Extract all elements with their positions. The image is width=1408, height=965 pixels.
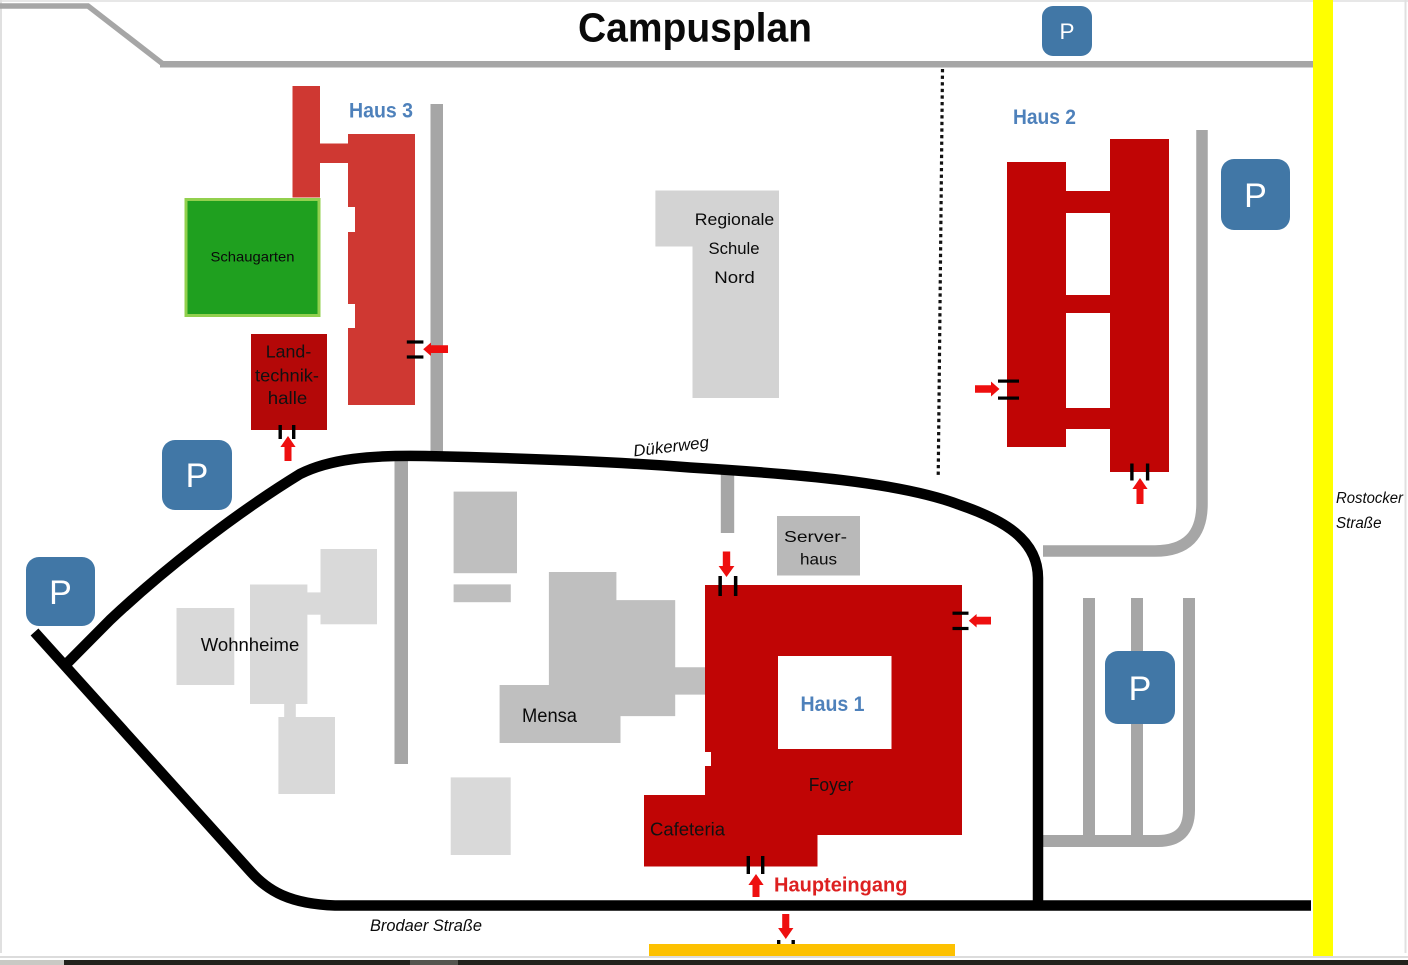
svg-text:Brodaer Straße: Brodaer Straße (370, 917, 482, 935)
svg-text:Server-: Server- (784, 529, 847, 546)
svg-text:P: P (1244, 177, 1267, 215)
svg-text:P: P (49, 574, 72, 612)
svg-text:Nord: Nord (714, 268, 755, 287)
svg-text:P: P (1059, 19, 1074, 44)
svg-text:Schule: Schule (709, 239, 760, 258)
svg-text:P: P (186, 457, 209, 495)
svg-text:Haus 3: Haus 3 (349, 100, 413, 123)
svg-text:Schaugarten: Schaugarten (211, 249, 295, 265)
svg-text:haus: haus (800, 552, 837, 569)
svg-text:Land-: Land- (266, 342, 312, 362)
svg-text:Wohnheime: Wohnheime (201, 634, 300, 655)
svg-text:Cafeteria: Cafeteria (650, 820, 726, 840)
svg-text:Foyer: Foyer (809, 775, 854, 795)
svg-text:Rostocker: Rostocker (1336, 490, 1404, 507)
svg-text:Campusplan: Campusplan (578, 5, 812, 51)
svg-text:Straße: Straße (1336, 515, 1382, 532)
svg-text:P: P (1129, 670, 1152, 708)
svg-text:Haus 2: Haus 2 (1013, 106, 1076, 129)
svg-text:Regionale: Regionale (695, 210, 775, 229)
svg-text:halle: halle (268, 388, 308, 408)
svg-text:Mensa: Mensa (522, 706, 577, 727)
svg-text:Haus 1: Haus 1 (801, 693, 865, 716)
svg-text:Haupteingang: Haupteingang (774, 875, 908, 897)
svg-text:technik-: technik- (255, 366, 319, 386)
